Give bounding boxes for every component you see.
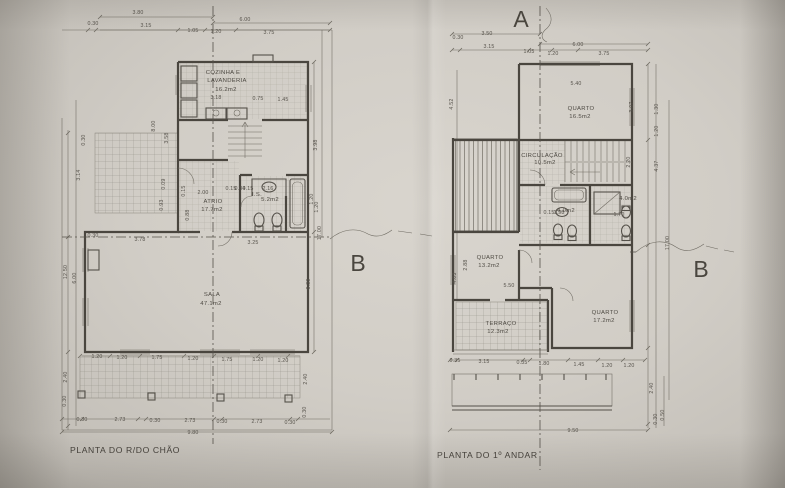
room-label-atrio: ATRIO — [203, 199, 222, 205]
room-area-is: 5.2m2 — [261, 197, 279, 203]
dim-label: 1.05 — [523, 49, 534, 55]
dim-label: 1.45 — [573, 362, 584, 368]
dim-label: 2.40 — [63, 371, 69, 382]
dim-label: 17.00 — [317, 226, 323, 240]
room-area-quarto-oeste: 13.2m2 — [478, 263, 499, 269]
dim-label: 0.30 — [62, 395, 68, 406]
dim-label: 0.30 — [87, 21, 98, 27]
section-marker-b-ground: B — [350, 250, 365, 276]
staircase — [565, 141, 632, 182]
dim-label: 2.40 — [303, 373, 309, 384]
terrace-railing — [453, 350, 548, 354]
dim-label: 0.93 — [159, 199, 165, 210]
dim-label: 2.73 — [184, 418, 195, 424]
room-label-quarto-oeste: QUARTO — [477, 255, 504, 261]
dim-label: 3.18 — [210, 95, 221, 101]
dim-label: 3.58 — [164, 132, 170, 143]
dim-label: 1.98 — [553, 210, 564, 216]
floor-plan-drawing: COZINHA E LAVANDERIA 16.2m2 ATRIO 17.7m2… — [0, 0, 785, 488]
dim-label: 4.37 — [654, 160, 660, 171]
dim-label: 3.25 — [247, 240, 258, 246]
dim-label: 4.03 — [452, 272, 458, 283]
room-area-atrio: 17.7m2 — [201, 207, 222, 213]
dim-label: 2.20 — [626, 156, 632, 167]
room-label-sala: SALA — [204, 292, 220, 298]
ground-floor-title: PLANTA DO R/DO CHÃO — [70, 445, 180, 455]
dim-label: 1.20 — [277, 358, 288, 364]
dim-label: 2.16 — [262, 186, 273, 192]
balcony-hatch-area — [453, 139, 517, 231]
dim-label: 0.75 — [252, 96, 263, 102]
dim-label: 5.50 — [503, 283, 514, 289]
dim-label: 3.07 — [629, 101, 635, 112]
dim-label: 0.30 — [452, 35, 463, 41]
dim-label: 3.98 — [313, 139, 319, 150]
dim-label: 1.20 — [309, 193, 315, 204]
dim-label: 2.40 — [649, 382, 655, 393]
dim-label: 1.05 — [187, 28, 198, 34]
dim-label: 2.73 — [114, 417, 125, 423]
dim-label: 0.35 — [449, 358, 460, 364]
dim-label: 1.75 — [151, 355, 162, 361]
first-floor-title: PLANTA DO 1º ANDAR — [437, 450, 538, 460]
room-area-quarto-norte: 16.5m2 — [569, 114, 590, 120]
dim-label: 5.40 — [570, 81, 581, 87]
room-area-circulacao: 10.5m2 — [534, 160, 555, 166]
dim-label: 0.50 — [660, 409, 666, 420]
dim-label: 12.50 — [63, 265, 69, 279]
patio-grid-area — [95, 133, 178, 213]
dim-label: 0.30 — [87, 233, 98, 239]
dim-label: 3.15 — [478, 359, 489, 365]
dim-label: 1.20 — [91, 354, 102, 360]
dim-label: 0.88 — [185, 209, 191, 220]
dim-label: 3.15 — [140, 23, 151, 29]
section-marker-a: A — [513, 6, 529, 32]
dim-label: 0.30 — [81, 134, 87, 145]
dim-label: 2.73 — [251, 419, 262, 425]
dim-label: 0.30 — [76, 417, 87, 423]
section-line-b-wave — [330, 230, 432, 239]
ground-floor-plan: COZINHA E LAVANDERIA 16.2m2 ATRIO 17.7m2… — [60, 6, 432, 455]
dim-label: 6.00 — [72, 272, 78, 283]
staircase — [228, 122, 262, 158]
dim-label: 0.35 — [516, 360, 527, 366]
room-area-quarto-sul: 17.2m2 — [593, 318, 614, 324]
dim-label: 6.39 — [306, 278, 312, 289]
dim-label: 3.50 — [481, 31, 492, 37]
dim-label: 0.15 — [242, 186, 253, 192]
dim-label: 0.30 — [284, 420, 295, 426]
dim-label: 1.20 — [623, 363, 634, 369]
dim-label: 1.20 — [601, 363, 612, 369]
dim-label: 0.30 — [216, 419, 227, 425]
bathroom-floor-tiles — [240, 176, 306, 231]
room-area-cozinha: 16.2m2 — [215, 87, 236, 93]
dim-label: 3.80 — [132, 10, 143, 16]
room-label-circulacao: CIRCULAÇÃO — [521, 152, 563, 159]
dim-label: 9.50 — [567, 428, 578, 434]
dim-label: 3.75 — [263, 30, 274, 36]
dim-label: 1.20 — [210, 29, 221, 35]
terrace-grid-area — [80, 356, 300, 398]
dim-label: 17.00 — [665, 236, 671, 250]
dim-label: 6.00 — [572, 42, 583, 48]
room-area-sala: 47.1m2 — [200, 301, 221, 307]
dim-label: 3.14 — [76, 169, 82, 180]
dim-label: 3.15 — [483, 44, 494, 50]
fireplace-shape — [88, 250, 99, 270]
dim-label: 0.15 — [181, 185, 187, 196]
kitchen-floor-tiles — [179, 63, 307, 119]
dim-label: 1.20 — [252, 357, 263, 363]
dim-label: 1.20 — [547, 51, 558, 57]
dim-label: 1.20 — [187, 356, 198, 362]
dim-label: 8.00 — [151, 120, 157, 131]
dim-label: 1.75 — [221, 357, 232, 363]
dim-label: 6.00 — [239, 17, 250, 23]
room-label-cozinha-2: LAVANDERIA — [207, 78, 246, 84]
pergola-strip — [452, 374, 612, 410]
dim-label: 3.75 — [598, 51, 609, 57]
section-marker-b-first: B — [693, 256, 708, 282]
dim-label: 1.30 — [654, 103, 660, 114]
dim-label: 3.78 — [134, 237, 145, 243]
dim-label: 0.30 — [302, 406, 308, 417]
room-area-terraco: 12.3m2 — [487, 329, 508, 335]
section-line-a-wave — [542, 8, 551, 42]
dim-label: 1.20 — [116, 355, 127, 361]
first-floor-plan: QUARTO 16.5m2 CIRCULAÇÃO 10.5m2 4.0m2 4.… — [437, 6, 734, 470]
room-label-cozinha: COZINHA E — [206, 70, 240, 76]
dim-label: 1.80 — [538, 361, 549, 367]
dim-label: 0.30 — [653, 413, 659, 424]
dim-label: 1.20 — [654, 125, 660, 136]
dim-label: 4.52 — [449, 98, 455, 109]
dim-label: 2.00 — [197, 190, 208, 196]
dim-label: 1.45 — [277, 97, 288, 103]
dim-label: 0.09 — [161, 178, 167, 189]
dim-label: 1.70 — [613, 212, 624, 218]
section-line-b-wave — [636, 242, 734, 252]
blueprint-photo: COZINHA E LAVANDERIA 16.2m2 ATRIO 17.7m2… — [0, 0, 785, 488]
room-label-quarto-norte: QUARTO — [568, 106, 595, 112]
dim-label: 9.80 — [187, 430, 198, 436]
dim-label: 2.88 — [463, 259, 469, 270]
room-area-is-2: 4.0m2 — [619, 196, 637, 202]
dim-label: 0.30 — [149, 418, 160, 424]
room-label-terraco: TERRAÇO — [486, 321, 517, 327]
room-label-quarto-sul: QUARTO — [592, 310, 619, 316]
